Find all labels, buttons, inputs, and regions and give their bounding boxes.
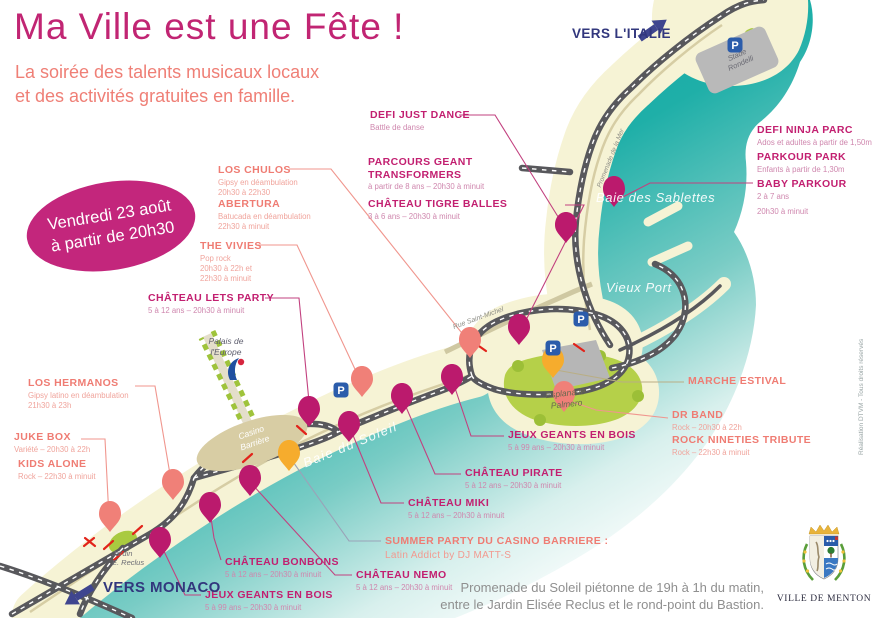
event-details: Rock – 22h30 à minuit [672,448,811,458]
tree [512,360,524,372]
label-connector [135,386,172,486]
page-title: Ma Ville est une Fête ! [14,6,404,48]
event-name: JEUX GEANTS EN BOIS [508,429,636,442]
event-label-abertura: ABERTURA Batucada en déambulation 22h30 … [218,198,311,232]
event-label-defi-ninja-parc: DEFI NINJA PARC Ados et adultes à partir… [757,124,872,148]
parking-icon: P [574,312,589,327]
event-name: THE VIVIES [200,240,262,253]
parking-icon: P [546,341,561,356]
event-details: Pop rock 20h30 à 22h et 22h30 à minuit [200,254,262,284]
event-label-parcours-transformers: PARCOURS GEANT TRANSFORMERS à partir de … [368,156,484,192]
event-details: Variété – 20h30 à 22h [14,445,90,455]
vieux-port-label: Vieux Port [606,280,672,295]
event-name: ROCK NINETIES TRIBUTE [672,434,811,447]
poster-map: P P P P Ma Ville est une Fête ! La soiré… [0,0,875,618]
event-name: KIDS ALONE [18,458,96,471]
jardin-reclus-label: Jardin E. Reclus [112,549,144,568]
event-name: PARCOURS GEANT TRANSFORMERS [368,156,484,181]
svg-text:P: P [337,385,344,397]
event-details: Batucada en déambulation 22h30 à minuit [218,212,311,232]
event-name: CHÂTEAU LETS PARTY [148,292,274,305]
event-name: LOS CHULOS [218,164,298,177]
event-details: 3 à 6 ans – 20h30 à minuit [368,212,507,222]
event-label-chateau-bonbons: CHÂTEAU BONBONS 5 à 12 ans – 20h30 à min… [225,556,339,580]
palais-europe-logo-icon [228,358,244,380]
event-details: 5 à 12 ans – 20h30 à minuit [148,306,274,316]
event-name: CHÂTEAU TIGRE BALLES [368,198,507,211]
event-details: 20h30 à minuit [757,207,808,217]
event-name: DR BAND [672,409,742,422]
label-connector [289,169,469,342]
event-details: Gipsy latino en déambulation 21h30 à 23h [28,391,129,411]
parking-icon: P [334,383,349,398]
svg-text:P: P [549,343,556,355]
event-label-jeux-geants-right: JEUX GEANTS EN BOIS 5 à 99 ans – 20h30 à… [508,429,636,453]
event-name: CHÂTEAU MIKI [408,497,504,510]
event-details: Gipsy en déambulation 20h30 à 22h30 [218,178,298,198]
event-details: 5 à 99 ans – 20h30 à minuit [508,443,636,453]
event-details: 5 à 12 ans – 20h30 à minuit [465,481,563,491]
event-details: 5 à 12 ans – 20h30 à minuit [225,570,339,580]
event-label-chateau-miki: CHÂTEAU MIKI 5 à 12 ans – 20h30 à minuit [408,497,504,521]
event-label-parkour-park: PARKOUR PARK Enfants à partir de 1,30m [757,151,846,175]
event-label-los-hermanos: LOS HERMANOS Gipsy latino en déambulatio… [28,377,129,411]
vers-italie-label: VERS L'ITALIE [572,26,671,41]
event-name: ABERTURA [218,198,311,211]
event-label-rock-nineties: ROCK NINETIES TRIBUTE Rock – 22h30 à min… [672,434,811,458]
event-details: 5 à 99 ans – 20h30 à minuit [205,603,333,613]
vers-monaco-label: VERS MONACO [103,579,221,596]
event-details: Battle de danse [370,123,470,133]
event-details: Ados et adultes à partir de 1,50m [757,138,872,148]
event-name: CHÂTEAU BONBONS [225,556,339,569]
baie-sablettes-label: Baie des Sablettes [596,190,715,205]
event-label-parkour-hours: 20h30 à minuit [757,206,808,217]
event-details: 2 à 7 ans [757,192,847,202]
event-label-the-vivies: THE VIVIES Pop rock 20h30 à 22h et 22h30… [200,240,262,284]
event-label-jeux-geants-left: JEUX GEANTS EN BOIS 5 à 99 ans – 20h30 à… [205,589,333,613]
event-label-defi-just-dance: DEFI JUST DANCE Battle de danse [370,109,470,133]
event-label-juke-box: JUKE BOX Variété – 20h30 à 22h [14,431,90,455]
event-label-summer-party: SUMMER PARTY DU CASINO BARRIERE : Latin … [385,535,608,562]
event-name: MARCHE ESTIVAL [688,375,786,388]
footer-notice: Promenade du Soleil piétonne de 19h à 1h… [398,580,764,614]
event-details: Enfants à partir de 1,30m [757,165,846,175]
city-name: VILLE DE MENTON [772,594,875,604]
event-details: 5 à 12 ans – 20h30 à minuit [408,511,504,521]
event-name: PARKOUR PARK [757,151,846,164]
palais-europe-label: Palais de l'Europe [196,336,256,357]
event-details: à partir de 8 ans – 20h30 à minuit [368,182,484,192]
event-name: LOS HERMANOS [28,377,129,390]
tree [632,390,644,402]
event-label-kids-alone: KIDS ALONE Rock – 22h30 à minuit [18,458,96,482]
event-label-dr-band: DR BAND Rock – 20h30 à 22h [672,409,742,433]
poster-subtitle: La soirée des talents musicaux locaux et… [15,60,319,109]
event-label-marche-estival: MARCHE ESTIVAL [688,375,786,388]
event-label-chateau-tigre-balles: CHÂTEAU TIGRE BALLES 3 à 6 ans – 20h30 à… [368,198,507,222]
event-name: SUMMER PARTY DU CASINO BARRIERE : [385,535,608,548]
event-label-chateau-lets-party: CHÂTEAU LETS PARTY 5 à 12 ans – 20h30 à … [148,292,274,316]
event-name: DEFI JUST DANCE [370,109,470,122]
credit-line: Réalisation DTVM - Tous droits réservés [858,339,865,455]
event-label-baby-parkour: BABY PARKOUR 2 à 7 ans [757,178,847,202]
event-label-chateau-pirate: CHÂTEAU PIRATE 5 à 12 ans – 20h30 à minu… [465,467,563,491]
event-details: Latin Addict by DJ MATT-S [385,549,608,562]
event-details: Rock – 22h30 à minuit [18,472,96,482]
event-details: Rock – 20h30 à 22h [672,423,742,433]
event-label-los-chulos: LOS CHULOS Gipsy en déambulation 20h30 à… [218,164,298,198]
event-name: JUKE BOX [14,431,90,444]
event-name: JEUX GEANTS EN BOIS [205,589,333,602]
city-crest-icon [802,525,845,580]
event-name: BABY PARKOUR [757,178,847,191]
event-name: CHÂTEAU PIRATE [465,467,563,480]
event-name: DEFI NINJA PARC [757,124,872,137]
svg-text:P: P [577,314,584,326]
tree [534,414,546,426]
